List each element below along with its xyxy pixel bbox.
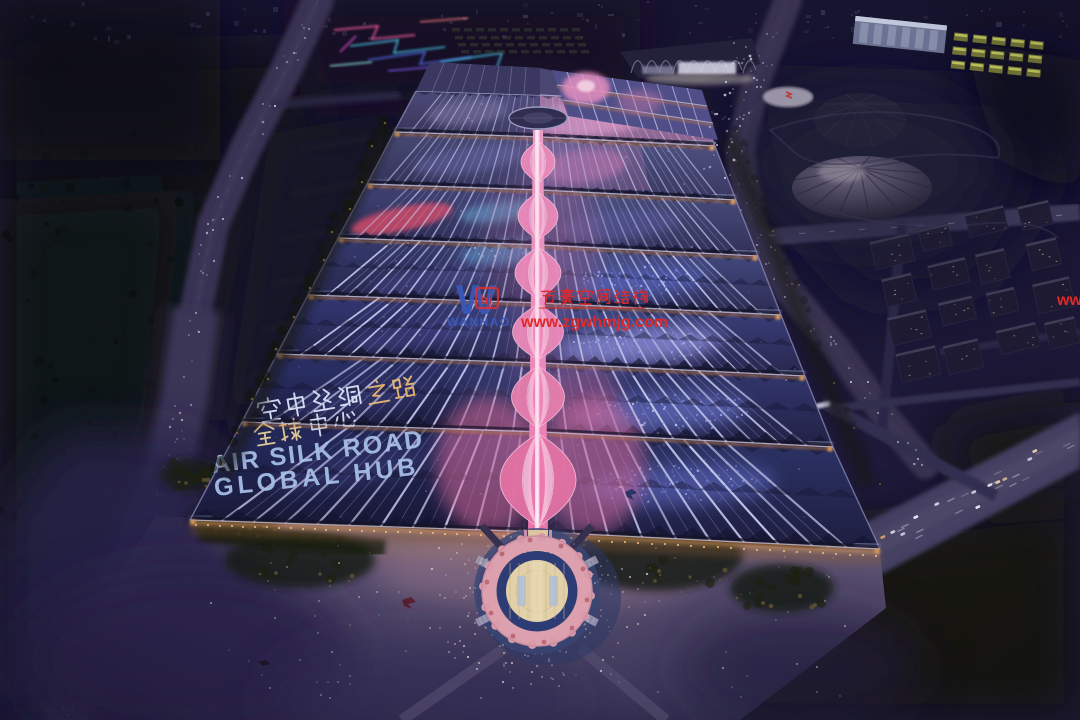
svg-text:www.zgwhmjg.com: www.zgwhmjg.com bbox=[520, 314, 668, 331]
svg-text:hj: hj bbox=[480, 292, 492, 307]
svg-text:ww: ww bbox=[1056, 292, 1080, 309]
svg-text:WANHAO: WANHAO bbox=[447, 315, 511, 329]
